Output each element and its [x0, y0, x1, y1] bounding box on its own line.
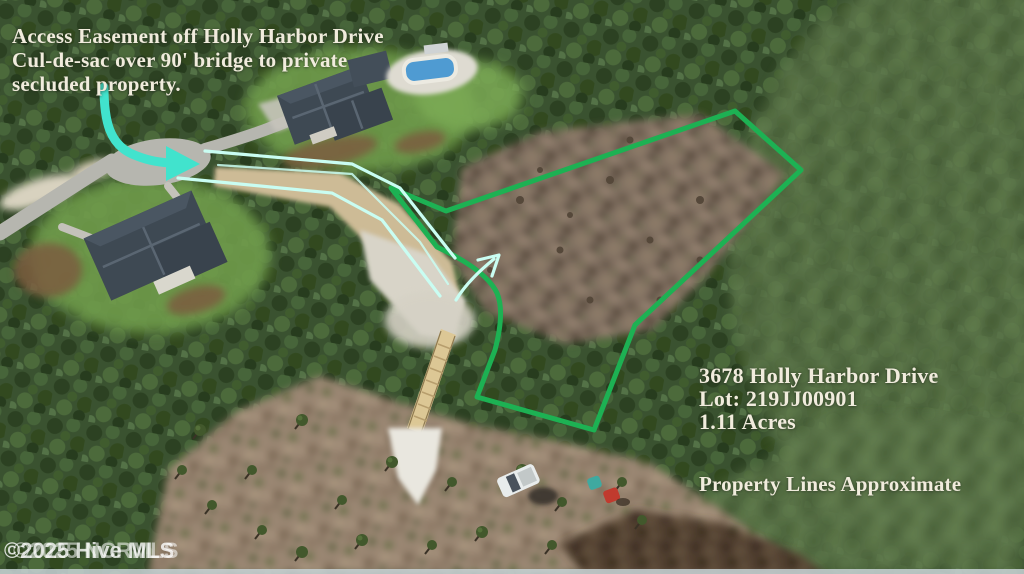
access-note-line2: Cul-de-sac over 90' bridge to private: [12, 48, 384, 72]
access-note-line3: secluded property.: [12, 72, 384, 96]
property-lines-disclaimer: Property Lines Approximate: [699, 472, 961, 497]
access-note-line1: Access Easement off Holly Harbor Drive: [12, 24, 384, 48]
mls-watermark-hive: ©2025 Hive MLS: [4, 538, 174, 564]
photo-edge-strip: [0, 569, 1024, 574]
address-line: 3678 Holly Harbor Drive: [699, 364, 938, 387]
mls-watermark: ©2025 NCRMLS ©2025 Hive MLS: [4, 538, 264, 566]
acreage: 1.11 Acres: [699, 410, 938, 433]
pool: [403, 55, 457, 84]
property-address-block: 3678 Holly Harbor Drive Lot: 219JJ00901 …: [699, 364, 938, 433]
aerial-listing-photo: Access Easement off Holly Harbor Drive C…: [0, 0, 1024, 574]
access-easement-note: Access Easement off Holly Harbor Drive C…: [12, 24, 384, 96]
lot-number: Lot: 219JJ00901: [699, 387, 938, 410]
